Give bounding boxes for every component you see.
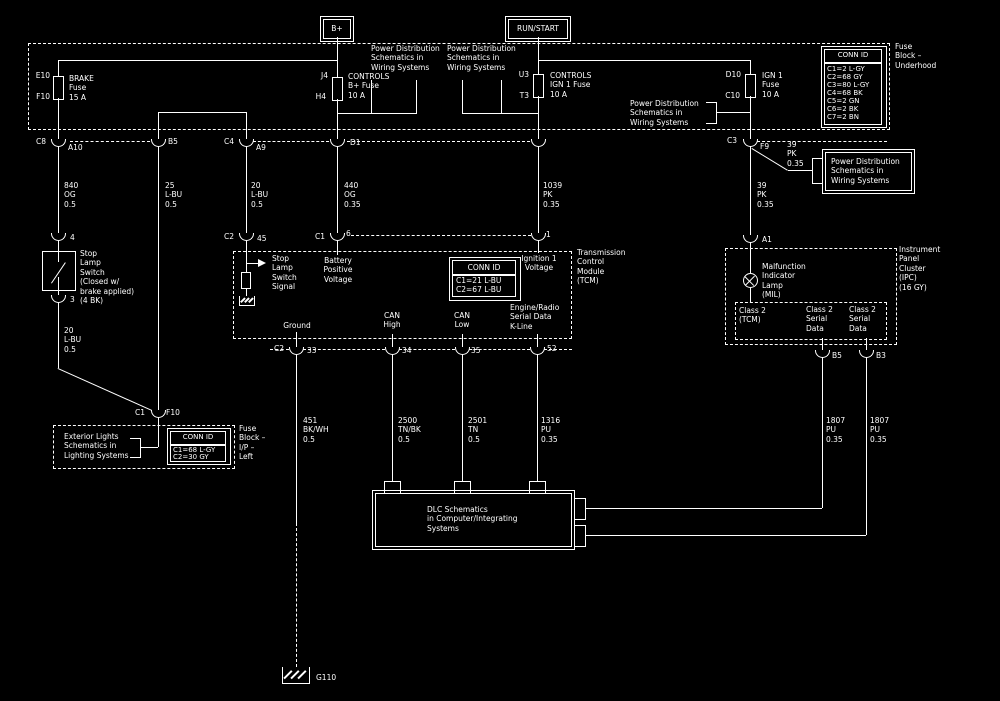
runstart-label: RUN/START <box>509 24 567 33</box>
connector-icon <box>151 139 166 147</box>
connector-label: C2 <box>274 344 284 353</box>
power-distribution-note: Power Distribution Schematics in Wiring … <box>630 99 699 127</box>
connector-label: 35 <box>471 346 481 355</box>
connector-label: A9 <box>256 143 266 152</box>
wire <box>58 277 59 289</box>
connector-icon <box>51 139 66 147</box>
stop-lamp-switch-label: Stop Lamp Switch (Closed w/ brake applie… <box>80 249 134 305</box>
wiring-diagram: B+ RUN/START Fuse Block – Underhood CONN… <box>0 0 1000 701</box>
wire <box>866 338 867 350</box>
wire <box>538 37 539 74</box>
wire-dashed <box>70 141 150 142</box>
wire <box>585 508 822 509</box>
wire <box>750 242 751 273</box>
controls-bplus-fuse-icon <box>332 77 343 101</box>
connector-icon <box>330 139 345 147</box>
wire <box>58 302 59 368</box>
wire <box>337 240 338 255</box>
tcm-signal-label: Ground <box>277 321 317 330</box>
connector-label: 1 <box>546 230 551 239</box>
exterior-lights-note: Exterior Lights Schematics in Lighting S… <box>64 432 129 460</box>
fuse-pin-label: D10 <box>720 70 741 79</box>
wire-label: 20 L-BU 0.5 <box>64 326 81 354</box>
tcm-signal-label: Stop Lamp Switch Signal <box>272 254 297 292</box>
wire <box>751 148 787 171</box>
wire <box>337 99 338 233</box>
connector-label: F9 <box>760 142 769 151</box>
wire <box>140 447 158 448</box>
wire <box>58 240 59 251</box>
tcm-connid-header: CONN ID <box>452 263 516 272</box>
connector-label: D1 <box>350 138 361 147</box>
brake-fuse-icon <box>53 76 64 100</box>
connector-icon <box>239 139 254 147</box>
wire <box>462 334 463 347</box>
connector-label: A10 <box>68 143 83 152</box>
wire <box>538 240 539 253</box>
dlc-note: DLC Schematics in Computer/Integrating S… <box>427 505 518 533</box>
resistor-icon <box>241 272 251 289</box>
wire <box>585 535 866 536</box>
wire <box>750 146 751 236</box>
wire-dashed <box>347 141 530 142</box>
tcm-signal-label: CAN Low <box>443 311 481 330</box>
connector-label: C8 <box>36 137 46 146</box>
wire <box>538 96 539 233</box>
ground-label: G110 <box>316 673 336 682</box>
wire <box>788 170 812 171</box>
wire <box>158 112 159 411</box>
tcm-connid-row: C2=67 L-BU <box>456 285 501 294</box>
tcm-connid-row: C1=21 L-BU <box>456 276 501 285</box>
connector-label: B5 <box>168 137 178 146</box>
switch-pin-label: 4 <box>70 233 75 242</box>
class2-label: Class 2 Serial Data <box>849 305 876 333</box>
class2-label: Class 2 (TCM) <box>739 306 766 325</box>
fuse-pin-label: H4 <box>306 92 326 101</box>
wire <box>392 334 393 347</box>
wire-label: 39 PK 0.35 <box>757 181 774 209</box>
controls-ign1-fuse-icon <box>533 74 544 98</box>
wire <box>246 240 247 272</box>
wire-dashed <box>296 523 297 667</box>
bplus-label: B+ <box>324 24 350 33</box>
note-bracket-icon <box>130 438 141 458</box>
wire-label: 1039 PK 0.35 <box>543 181 562 209</box>
connector-bracket-icon <box>454 481 471 493</box>
wire-dashed <box>351 235 531 236</box>
wire <box>246 112 247 233</box>
wire <box>337 37 338 77</box>
connector-label: C4 <box>224 137 234 146</box>
wire <box>822 338 823 350</box>
power-distribution-note: Power Distribution Schematics in Wiring … <box>371 44 440 72</box>
wire-label: 1807 PU 0.35 <box>826 416 845 444</box>
connector-label: C3 <box>727 136 737 145</box>
wire <box>58 60 59 76</box>
wire <box>296 332 297 347</box>
wire-label: 39 PK 0.35 <box>787 140 804 168</box>
fuse-block-ip-label: Fuse Block – I/P – Left <box>239 424 265 462</box>
wire <box>58 98 59 233</box>
class2-label: Class 2 Serial Data <box>806 305 833 333</box>
connector-label: 6 <box>346 229 351 238</box>
wire-label: 840 OG 0.5 <box>64 181 78 209</box>
signal-arrow-icon <box>258 259 266 267</box>
wire <box>750 288 751 302</box>
controls-ign1-fuse-label: CONTROLS IGN 1 Fuse 10 A <box>550 71 591 99</box>
power-distribution-note: Power Distribution Schematics in Wiring … <box>447 44 516 72</box>
fuse-pin-label: E10 <box>30 71 50 80</box>
connector-bracket-icon <box>575 498 586 520</box>
wire-label: 2500 TN/BK 0.5 <box>398 416 421 444</box>
connector-label: A1 <box>762 235 772 244</box>
ip-connid-row: C2=30 GY <box>173 453 209 462</box>
brake-fuse-label: BRAKE Fuse 15 A <box>69 74 94 102</box>
connector-bracket-icon <box>575 525 586 547</box>
wire-label: 20 L-BU 0.5 <box>251 181 268 209</box>
wire <box>538 60 751 61</box>
connector-label: C2 <box>224 232 234 241</box>
connector-bracket-icon <box>384 481 401 493</box>
wire <box>246 263 258 264</box>
wire <box>392 354 393 481</box>
mil-label: Malfunction Indicator Lamp (MIL) <box>762 262 806 300</box>
wire <box>158 112 247 113</box>
connector-label: 45 <box>257 234 267 243</box>
connector-label: 52 <box>547 344 557 353</box>
connector-icon <box>531 139 546 147</box>
underhood-connid-header: CONN ID <box>824 51 882 60</box>
ground-icon <box>282 667 310 684</box>
wire-label: 1807 PU 0.35 <box>870 416 889 444</box>
wire-dashed <box>253 141 329 142</box>
wire-label: 440 OG 0.35 <box>344 181 361 209</box>
connector-label: B3 <box>876 351 886 360</box>
wire <box>296 354 297 523</box>
tcm-signal-label: Engine/Radio Serial Data K-Line <box>510 303 559 331</box>
fuse-pin-label: C10 <box>719 91 740 100</box>
tcm-label: Transmission Control Module (TCM) <box>577 248 625 286</box>
tcm-signal-label: CAN High <box>373 311 411 330</box>
power-distribution-box-label: Power Distribution Schematics in Wiring … <box>831 157 900 185</box>
fuse-pin-label: J4 <box>308 71 328 80</box>
wire-label: 25 L-BU 0.5 <box>165 181 182 209</box>
switch-pin-label: 3 <box>70 295 75 304</box>
wire <box>750 60 751 74</box>
note-bracket-icon <box>706 102 717 124</box>
wire <box>58 60 338 61</box>
underhood-connid-row: C7=2 BN <box>827 113 859 122</box>
wire-dashed <box>757 141 887 142</box>
connector-label: 34 <box>402 346 412 355</box>
wire <box>537 334 538 347</box>
connector-label: B5 <box>832 351 842 360</box>
ipc-label: Instrument Panel Cluster (IPC) (16 GY) <box>899 245 940 292</box>
connector-bracket-icon <box>812 158 823 184</box>
wire <box>246 288 247 296</box>
wire <box>58 368 152 411</box>
wire <box>58 251 59 262</box>
wire <box>537 354 538 481</box>
ign1-fuse-icon <box>745 74 756 98</box>
wire <box>337 113 371 114</box>
ground-icon <box>239 296 255 306</box>
wire <box>866 357 867 535</box>
connector-label: 33 <box>307 346 317 355</box>
tcm-signal-label: Battery Positive Voltage <box>320 256 356 284</box>
wire-label: 451 BK/WH 0.5 <box>303 416 329 444</box>
wire <box>500 113 538 114</box>
tcm-signal-label: Ignition 1 Voltage <box>517 254 561 273</box>
wire <box>716 112 750 113</box>
connector-label: C1 <box>315 232 325 241</box>
connector-label: C1 <box>135 408 145 417</box>
wire <box>822 357 823 508</box>
fuse-pin-label: F10 <box>30 92 50 101</box>
fuse-block-underhood-label: Fuse Block – Underhood <box>895 42 936 70</box>
ign1-fuse-label: IGN 1 Fuse 10 A <box>762 71 783 99</box>
bplus-feed-box: B+ <box>323 19 351 39</box>
note-bracket-icon <box>462 80 502 114</box>
ip-connid-header: CONN ID <box>170 433 226 442</box>
note-bracket-icon <box>371 80 417 114</box>
wire <box>462 354 463 481</box>
wire-label: 1316 PU 0.35 <box>541 416 560 444</box>
fuse-pin-label: T3 <box>509 91 529 100</box>
runstart-feed-box: RUN/START <box>508 19 568 39</box>
connector-label: F10 <box>166 408 180 417</box>
connector-bracket-icon <box>529 481 546 493</box>
wire-label: 2501 TN 0.5 <box>468 416 487 444</box>
